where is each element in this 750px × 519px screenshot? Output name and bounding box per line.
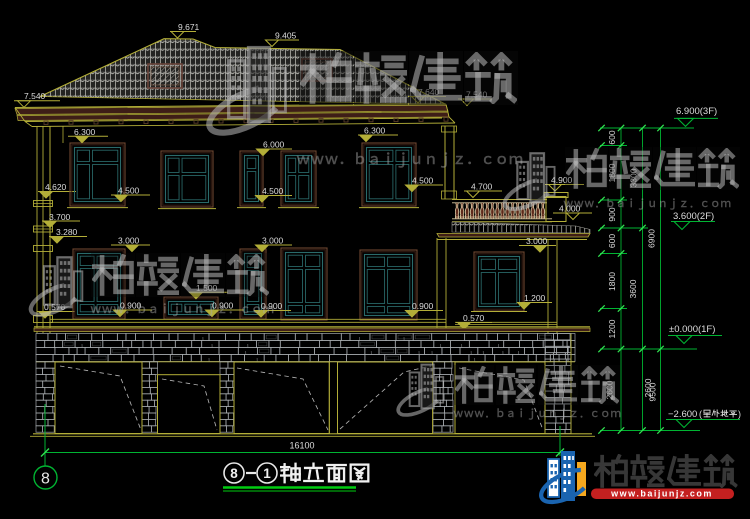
- svg-text:9500: 9500: [648, 382, 658, 401]
- svg-text:16100: 16100: [289, 441, 314, 451]
- svg-text:1: 1: [263, 466, 271, 481]
- svg-text:9.405: 9.405: [275, 31, 297, 41]
- svg-text:(: (: [699, 409, 702, 419]
- svg-text:ｗｗｗ．ｂａｉｊｕｎｊｚ．ｃｏｍ: ｗｗｗ．ｂａｉｊｕｎｊｚ．ｃｏｍ: [296, 151, 523, 169]
- svg-text:7.540: 7.540: [24, 91, 46, 101]
- svg-text:ｗｗｗ．ｂａｉｊｕｎｊｚ．ｃｏｍ: ｗｗｗ．ｂａｉｊｕｎｊｚ．ｃｏｍ: [90, 302, 274, 317]
- svg-text:1800: 1800: [607, 272, 617, 291]
- svg-text:1.200: 1.200: [524, 293, 546, 303]
- svg-text:4.500: 4.500: [262, 186, 284, 196]
- svg-text:3.600(2F): 3.600(2F): [673, 211, 714, 222]
- svg-text:4.500: 4.500: [412, 176, 434, 186]
- svg-text:4.620: 4.620: [45, 182, 67, 192]
- svg-text:±0.000(1F): ±0.000(1F): [669, 324, 715, 335]
- svg-text:ｗｗｗ．ｂａｉｊｕｎｊｚ．ｃｏｍ: ｗｗｗ．ｂａｉｊｕｎｊｚ．ｃｏｍ: [453, 408, 621, 421]
- svg-text:3.000: 3.000: [526, 236, 548, 246]
- svg-text:ｗｗｗ．ｂａｉｊｕｎｊｚ．ｃｏｍ: ｗｗｗ．ｂａｉｊｕｎｊｚ．ｃｏｍ: [563, 198, 731, 211]
- svg-text:3.000: 3.000: [118, 236, 140, 246]
- svg-text:6.900(3F): 6.900(3F): [676, 106, 717, 117]
- svg-text:3600: 3600: [628, 279, 638, 298]
- svg-text:6.000: 6.000: [263, 140, 285, 150]
- svg-text:0.570: 0.570: [463, 313, 485, 323]
- svg-text:): ): [738, 409, 741, 419]
- svg-text:8: 8: [41, 471, 50, 488]
- svg-text:600: 600: [607, 234, 617, 248]
- svg-text:6.300: 6.300: [364, 126, 386, 136]
- svg-text:3.280: 3.280: [56, 227, 78, 237]
- svg-text:6.300: 6.300: [74, 127, 96, 137]
- svg-text:4.700: 4.700: [471, 182, 493, 192]
- svg-text:600: 600: [607, 130, 617, 144]
- svg-text:4.500: 4.500: [118, 186, 140, 196]
- svg-text:6900: 6900: [647, 229, 657, 248]
- svg-text:−2.600: −2.600: [668, 409, 697, 420]
- svg-text:www.baijunjz.com: www.baijunjz.com: [610, 489, 713, 499]
- svg-text:8: 8: [230, 466, 238, 481]
- svg-text:0.900: 0.900: [412, 301, 434, 311]
- svg-text:9.671: 9.671: [178, 22, 200, 32]
- svg-text:3.000: 3.000: [262, 236, 284, 246]
- svg-text:1200: 1200: [607, 319, 617, 338]
